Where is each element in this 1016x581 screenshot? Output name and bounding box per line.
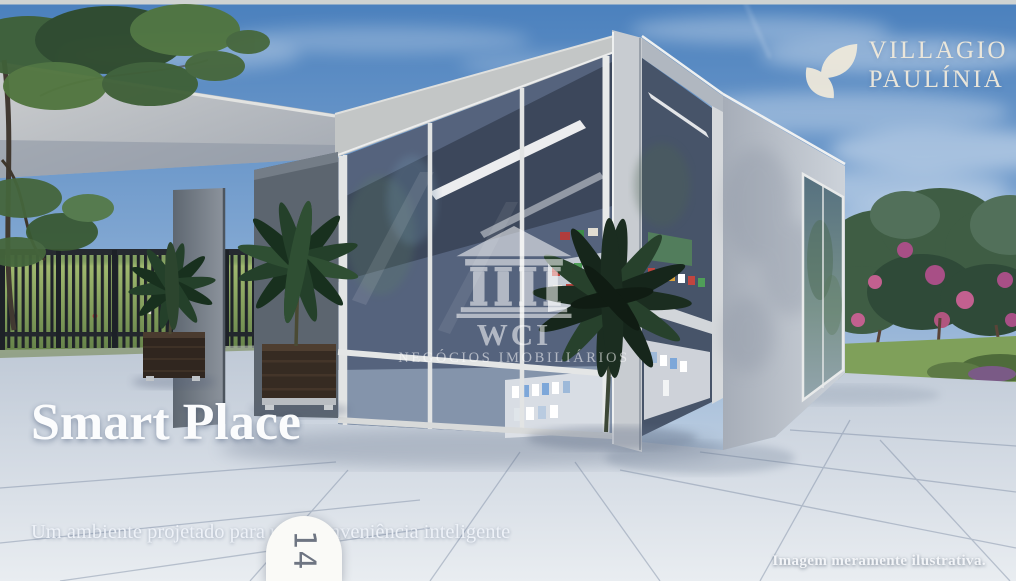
watermark-tagline: NEGÓCIOS IMOBILIÁRIOS (396, 350, 632, 367)
top-edge-strip (0, 0, 1016, 5)
leaf-sprout-icon (799, 42, 863, 100)
side-glass (634, 36, 723, 436)
temple-columns-icon (453, 226, 575, 318)
planter-small (132, 332, 216, 389)
watermark: WCI NEGÓCIOS IMOBILIÁRIOS (396, 226, 632, 367)
brand-logo: VILLAGIO PAULÍNIA (799, 36, 1008, 100)
watermark-name: WCI (396, 320, 632, 350)
side-window-frame (712, 106, 723, 404)
page-number: 14 (287, 530, 322, 570)
page-title: Smart Place (31, 394, 510, 452)
glass-door (803, 174, 843, 400)
brand-line-2: PAULÍNIA (869, 65, 1008, 94)
disclaimer-text: Imagem meramente ilustrativa. (772, 553, 986, 570)
purple-plant (968, 366, 1016, 382)
brand-line-1: VILLAGIO (869, 36, 1008, 65)
spray-bottle (663, 380, 669, 396)
brochure-page: VILLAGIO PAULÍNIA WCI NEGÓCIOS IMOBILIÁR… (0, 0, 1016, 581)
